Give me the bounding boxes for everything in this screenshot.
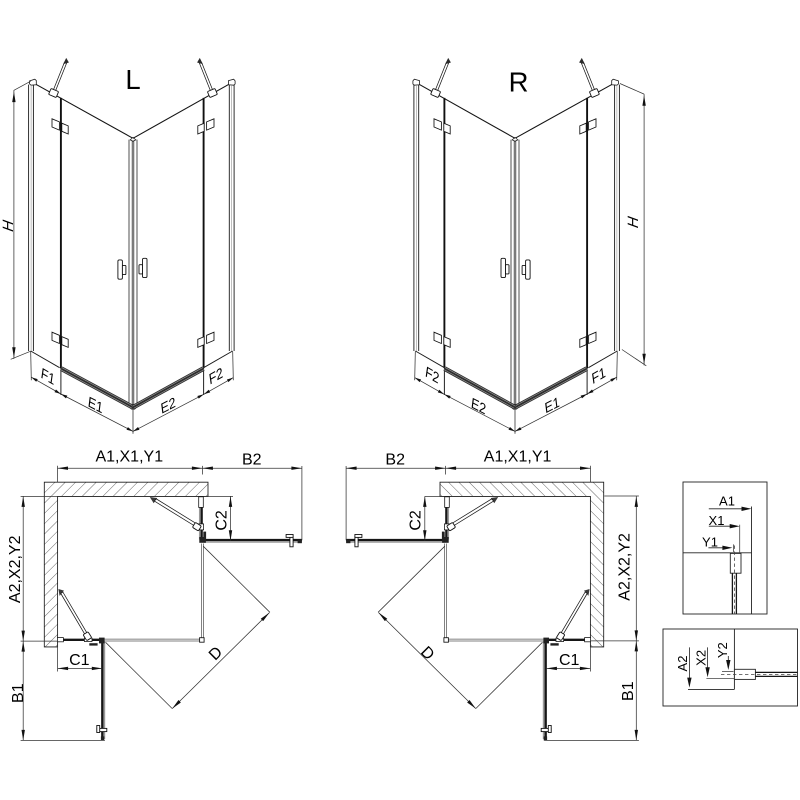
svg-text:A2: A2 [675,656,690,672]
svg-text:R: R [509,67,529,98]
svg-text:C1: C1 [69,652,90,669]
svg-text:B2: B2 [242,451,262,468]
svg-text:Y2: Y2 [715,642,730,658]
svg-text:A1: A1 [719,494,735,509]
svg-text:B2: B2 [385,451,405,468]
svg-text:Y1: Y1 [702,534,718,549]
svg-text:C2: C2 [214,510,231,531]
svg-text:B1: B1 [620,681,637,701]
svg-text:A2,X2,Y2: A2,X2,Y2 [7,535,24,603]
svg-text:C2: C2 [408,510,425,531]
svg-text:L: L [125,64,140,95]
svg-text:B1: B1 [10,683,27,703]
svg-text:A1,X1,Y1: A1,X1,Y1 [484,449,552,466]
svg-text:X1: X1 [709,513,725,528]
svg-text:A1,X1,Y1: A1,X1,Y1 [95,449,163,466]
svg-text:C1: C1 [559,652,580,669]
svg-text:A2,X2,Y2: A2,X2,Y2 [616,533,633,601]
svg-text:X2: X2 [694,650,709,666]
